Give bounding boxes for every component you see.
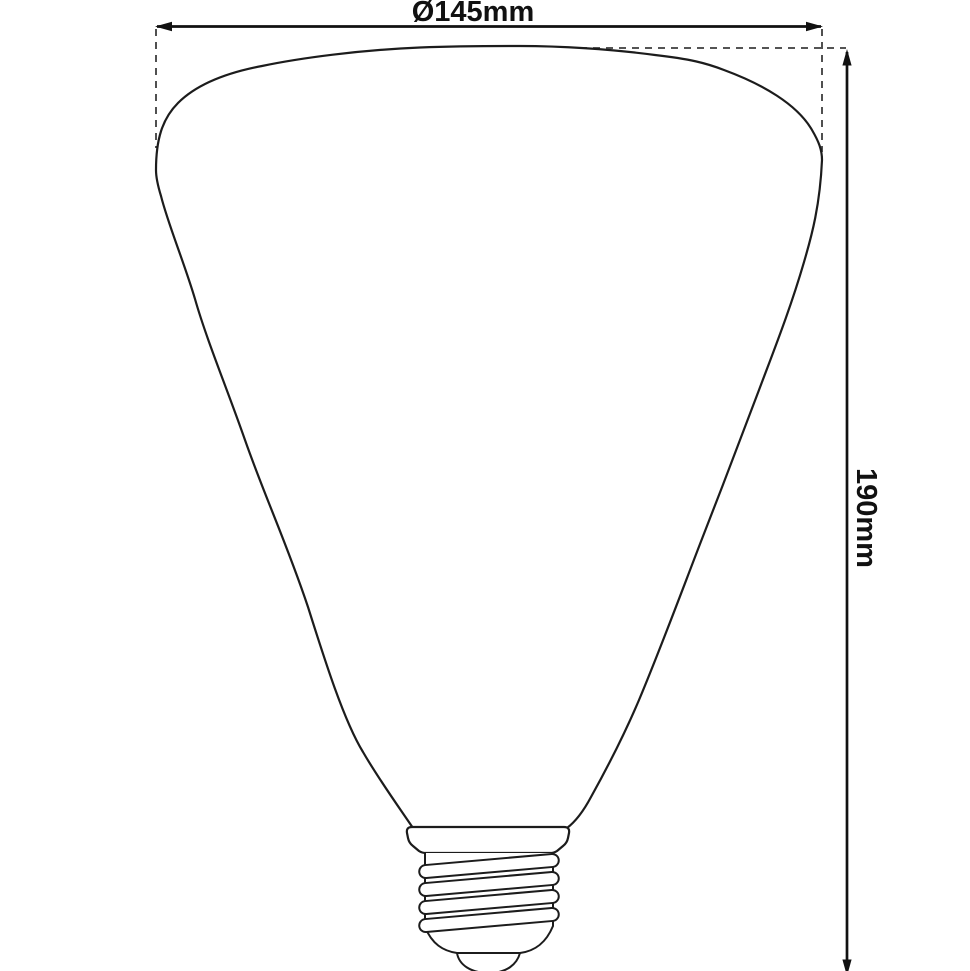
bulb-glass-outline [156, 46, 822, 828]
base-contact-tip [457, 953, 520, 971]
diameter-label: Ø145mm [412, 0, 535, 28]
e27-screw-base [407, 827, 569, 971]
height-dimension: 190mm [842, 49, 882, 971]
diameter-arrow-right-icon [806, 22, 823, 31]
height-arrow-bottom-icon [842, 960, 851, 971]
height-arrow-top-icon [842, 49, 851, 66]
diameter-dimension: Ø145mm [155, 0, 823, 31]
dimension-diagram: Ø145mm 190mm [0, 0, 970, 971]
diagram-canvas: Ø145mm 190mm [0, 0, 970, 971]
height-label: 190mm [850, 468, 882, 568]
diameter-arrow-left-icon [155, 22, 172, 31]
base-collar [407, 827, 569, 853]
